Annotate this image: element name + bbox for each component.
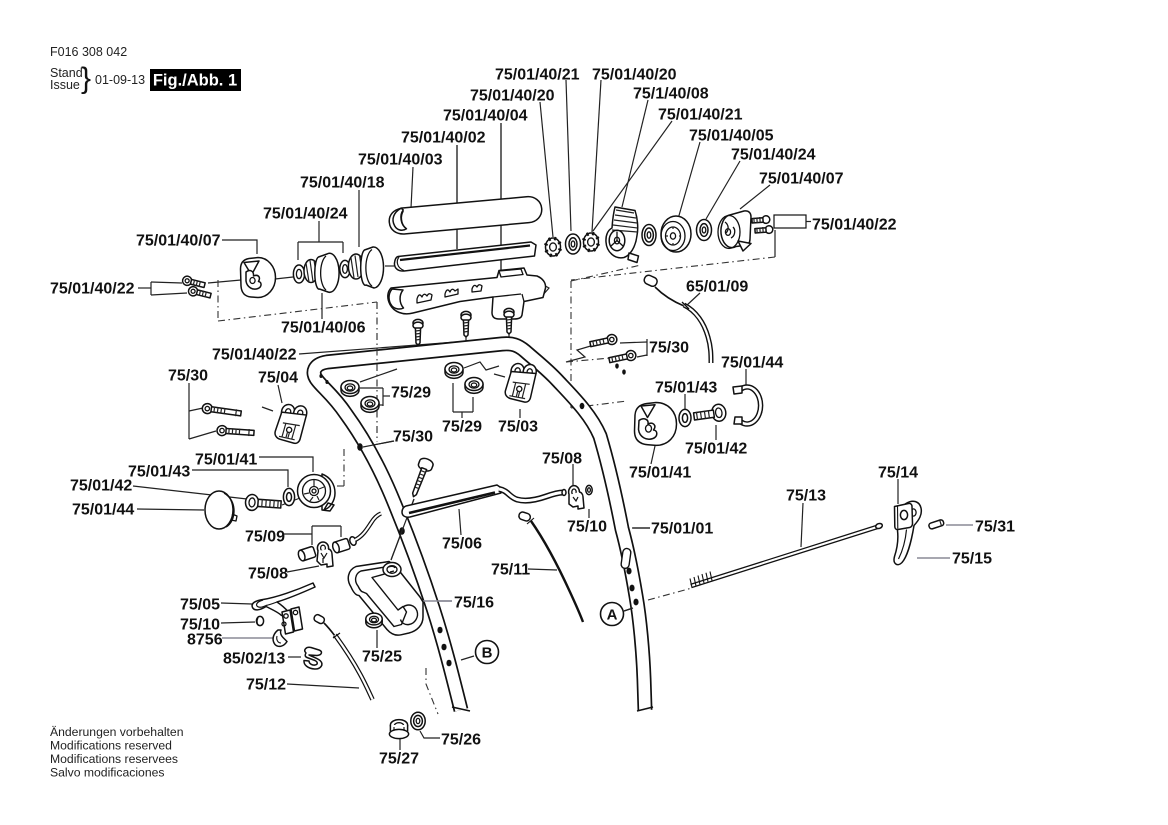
- svg-text:75/01/01: 75/01/01: [651, 521, 713, 538]
- svg-text:65/01/09: 65/01/09: [686, 279, 748, 296]
- svg-text:75/08: 75/08: [542, 451, 582, 468]
- svg-text:75/01/41: 75/01/41: [195, 452, 257, 469]
- svg-text:Salvo modificaciones: Salvo modificaciones: [50, 766, 164, 780]
- svg-text:75/01/40/22: 75/01/40/22: [812, 217, 897, 234]
- svg-text:75/09: 75/09: [245, 529, 285, 546]
- svg-text:75/01/40/21: 75/01/40/21: [495, 67, 580, 84]
- svg-text:Fig./Abb. 1: Fig./Abb. 1: [153, 72, 237, 90]
- svg-text:75/01/40/24: 75/01/40/24: [263, 206, 348, 223]
- svg-text:75/01/40/24: 75/01/40/24: [731, 147, 816, 164]
- svg-text:75/01/40/05: 75/01/40/05: [689, 128, 774, 145]
- svg-text:75/01/40/04: 75/01/40/04: [443, 108, 528, 125]
- svg-text:75/14: 75/14: [878, 465, 918, 482]
- svg-text:75/01/44: 75/01/44: [721, 355, 783, 372]
- svg-text:75/01/40/18: 75/01/40/18: [300, 175, 385, 192]
- svg-text:Issue: Issue: [50, 78, 80, 92]
- svg-text:Modifications reserved: Modifications reserved: [50, 739, 172, 753]
- svg-text:75/15: 75/15: [952, 551, 992, 568]
- svg-text:75/08: 75/08: [248, 566, 288, 583]
- svg-text:75/01/40/20: 75/01/40/20: [470, 88, 555, 105]
- svg-text:01-09-13: 01-09-13: [95, 73, 145, 87]
- svg-text:75/25: 75/25: [362, 649, 402, 666]
- svg-text:75/1/40/08: 75/1/40/08: [633, 86, 709, 103]
- svg-text:75/26: 75/26: [441, 732, 481, 749]
- svg-text:75/01/40/03: 75/01/40/03: [358, 152, 443, 169]
- svg-text:75/01/40/07: 75/01/40/07: [136, 233, 221, 250]
- svg-text:75/01/42: 75/01/42: [70, 478, 132, 495]
- svg-text:75/30: 75/30: [649, 340, 689, 357]
- svg-text:75/01/40/20: 75/01/40/20: [592, 67, 677, 84]
- svg-text:75/06: 75/06: [442, 536, 482, 553]
- svg-text:75/01/40/06: 75/01/40/06: [281, 320, 366, 337]
- svg-text:75/01/43: 75/01/43: [128, 464, 190, 481]
- svg-text:75/29: 75/29: [391, 385, 431, 402]
- svg-text:75/30: 75/30: [393, 429, 433, 446]
- svg-text:75/29: 75/29: [442, 419, 482, 436]
- svg-text:75/01/41: 75/01/41: [629, 465, 691, 482]
- svg-text:}: }: [81, 62, 91, 95]
- svg-text:8756: 8756: [187, 632, 223, 649]
- svg-text:75/16: 75/16: [454, 595, 494, 612]
- svg-text:75/13: 75/13: [786, 488, 826, 505]
- svg-text:A: A: [607, 607, 618, 624]
- svg-text:75/01/43: 75/01/43: [655, 380, 717, 397]
- svg-text:75/01/40/22: 75/01/40/22: [50, 281, 135, 298]
- svg-text:75/01/44: 75/01/44: [72, 502, 134, 519]
- svg-text:85/02/13: 85/02/13: [223, 651, 285, 668]
- svg-text:75/03: 75/03: [498, 419, 538, 436]
- svg-text:75/01/40/21: 75/01/40/21: [658, 107, 743, 124]
- svg-text:75/10: 75/10: [567, 519, 607, 536]
- svg-text:75/01/40/22: 75/01/40/22: [212, 347, 297, 364]
- svg-text:F016 308 042: F016 308 042: [50, 45, 127, 59]
- svg-text:B: B: [482, 645, 493, 662]
- svg-text:75/01/42: 75/01/42: [685, 441, 747, 458]
- svg-text:75/01/40/07: 75/01/40/07: [759, 171, 844, 188]
- svg-text:75/04: 75/04: [258, 370, 298, 387]
- svg-text:75/11: 75/11: [491, 562, 530, 579]
- svg-text:75/30: 75/30: [168, 368, 208, 385]
- svg-text:75/12: 75/12: [246, 677, 286, 694]
- svg-text:75/27: 75/27: [379, 751, 419, 768]
- svg-text:Modifications reservees: Modifications reservees: [50, 752, 178, 766]
- svg-text:75/05: 75/05: [180, 597, 220, 614]
- svg-text:75/31: 75/31: [975, 519, 1015, 536]
- svg-text:75/01/40/02: 75/01/40/02: [401, 130, 486, 147]
- svg-text:Änderungen vorbehalten: Änderungen vorbehalten: [50, 725, 184, 739]
